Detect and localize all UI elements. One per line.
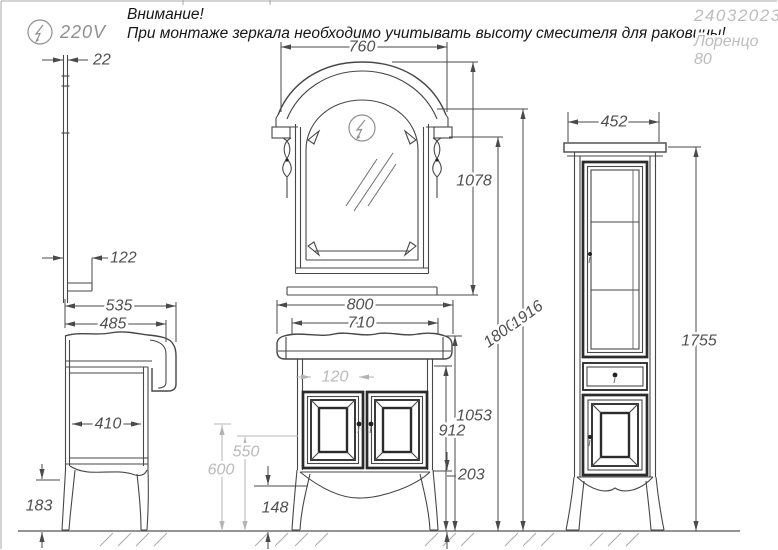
floor-hatch — [100, 533, 639, 546]
corner-ornaments — [308, 131, 416, 255]
tall-cabinet-view — [564, 143, 666, 530]
warning-title: Внимание! — [127, 6, 205, 23]
dim-mirror-height: 1078 — [456, 173, 492, 190]
cabinet-crown — [564, 143, 666, 152]
drawer-knob — [613, 373, 618, 378]
mirror-outer-arch — [278, 62, 446, 115]
dim-height-countertop-bottom: 912 — [439, 423, 466, 440]
mirror-shelf — [287, 287, 437, 295]
dim-depth-total: 535 — [106, 298, 133, 315]
dim-ref-550: 550 — [233, 444, 260, 461]
power-icon — [28, 20, 52, 44]
cabinet-drawer — [583, 363, 647, 390]
cabinet-apron — [577, 477, 653, 491]
vanity-front-view — [277, 333, 452, 530]
dim-height-total: 1916 — [508, 298, 547, 333]
vanity-leg-right — [420, 470, 438, 530]
warning-text: При монтаже зеркала необходимо учитывать… — [127, 25, 726, 42]
technical-drawing: 220V Внимание! При монтаже зеркала необх… — [0, 0, 778, 550]
countertop — [277, 333, 452, 359]
lower-door-knob — [588, 435, 592, 439]
mirror-front-view — [272, 62, 452, 295]
door-right — [367, 392, 427, 468]
front-leg — [137, 470, 148, 530]
dim-ref-600: 600 — [208, 462, 235, 479]
dim-apron-clearance: 148 — [262, 500, 289, 517]
glass-door-knob — [588, 252, 592, 256]
product-name: Лоренцо — [693, 33, 759, 50]
back-leg — [62, 470, 75, 530]
cabinet-leg-right — [646, 477, 664, 530]
product-size: 80 — [694, 51, 712, 68]
dim-cabinet-width: 710 — [348, 315, 375, 332]
voltage-label: 220V — [59, 22, 107, 42]
vanity-apron — [300, 472, 430, 498]
page-frame — [1, 0, 777, 549]
mirror-power-icon — [349, 115, 375, 141]
dim-leg-height: 183 — [26, 498, 53, 515]
dim-plinth: 203 — [457, 467, 485, 484]
dim-mirror-width: 760 — [349, 39, 376, 56]
apron-profile — [70, 466, 147, 475]
right-sconce — [433, 127, 452, 198]
dim-basin-width: 800 — [347, 297, 374, 314]
lower-door — [583, 395, 647, 475]
door-knob — [357, 422, 362, 427]
cabinet-leg-left — [566, 477, 584, 530]
dim-shelf-depth: 122 — [110, 250, 137, 267]
mirror-reflection — [346, 153, 396, 211]
dim-depth-cabinet: 410 — [95, 416, 122, 433]
header: 220V Внимание! При монтаже зеркала необх… — [28, 6, 778, 68]
glass-door — [583, 162, 647, 357]
dim-column-height: 1755 — [681, 333, 717, 350]
dim-mirror-thickness: 22 — [92, 52, 111, 69]
floor-line — [18, 531, 740, 546]
door-left — [303, 392, 363, 468]
side-view — [62, 55, 177, 530]
door-knob — [369, 422, 374, 427]
doc-number: 24032023 — [693, 6, 778, 25]
dim-column-width: 452 — [601, 114, 628, 131]
vanity-leg-left — [292, 470, 310, 530]
left-sconce — [272, 127, 291, 198]
dim-depth-basin: 485 — [100, 316, 127, 333]
dim-center-gap: 120 — [322, 369, 349, 386]
